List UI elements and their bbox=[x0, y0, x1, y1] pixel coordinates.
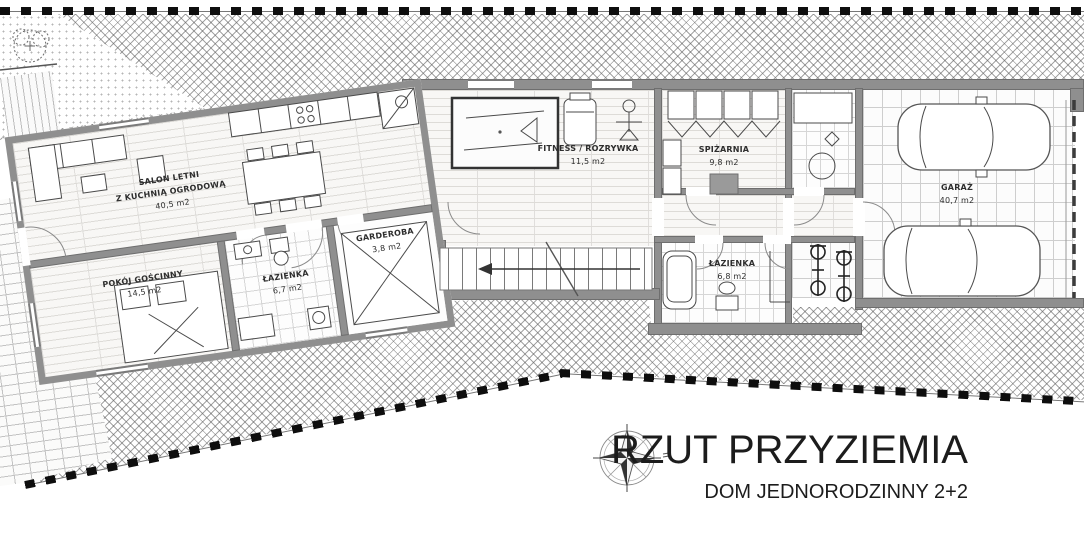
room-name: FITNESS / ROZRYWKA bbox=[498, 142, 678, 155]
room-label-lazienka-2: ŁAZIENKA 6,8 m2 bbox=[672, 257, 792, 283]
staircase bbox=[440, 242, 652, 296]
door-gaps bbox=[652, 187, 865, 244]
treadmill-icon bbox=[564, 93, 596, 145]
room-name: GARAŻ bbox=[877, 181, 1037, 194]
bicycle-icons bbox=[810, 244, 852, 302]
room-label-garaz: GARAŻ 40,7 m2 bbox=[877, 181, 1037, 207]
room-label-fitness: FITNESS / ROZRYWKA 11,5 m2 bbox=[498, 142, 678, 168]
exercise-bike-icon bbox=[616, 100, 642, 140]
plan-subtitle: DOM JEDNORODZINNY 2+2 bbox=[611, 480, 968, 504]
car-bottom bbox=[884, 219, 1040, 296]
room-area: 11,5 m2 bbox=[498, 155, 678, 168]
room-area: 40,7 m2 bbox=[877, 194, 1037, 207]
room-name: ŁAZIENKA bbox=[672, 257, 792, 270]
floor-plan-canvas: SALON LETNI Z KUCHNIĄ OGRODOWĄ 40,5 m2 P… bbox=[0, 0, 1084, 540]
car-top bbox=[898, 97, 1050, 177]
room-label-spizarnia: SPIŻARNIA 9,8 m2 bbox=[654, 143, 794, 169]
room-area: 9,8 m2 bbox=[654, 156, 794, 169]
room-area: 6,8 m2 bbox=[672, 270, 792, 283]
title-block: RZUT PRZYZIEMIA DOM JEDNORODZINNY 2+2 bbox=[611, 428, 968, 504]
fence-line bbox=[0, 64, 57, 70]
room-name: SPIŻARNIA bbox=[654, 143, 794, 156]
technical-room-fixtures bbox=[794, 93, 852, 179]
tree-icon bbox=[13, 29, 49, 62]
garage-door bbox=[1066, 100, 1074, 298]
plan-title: RZUT PRZYZIEMIA bbox=[611, 428, 968, 472]
